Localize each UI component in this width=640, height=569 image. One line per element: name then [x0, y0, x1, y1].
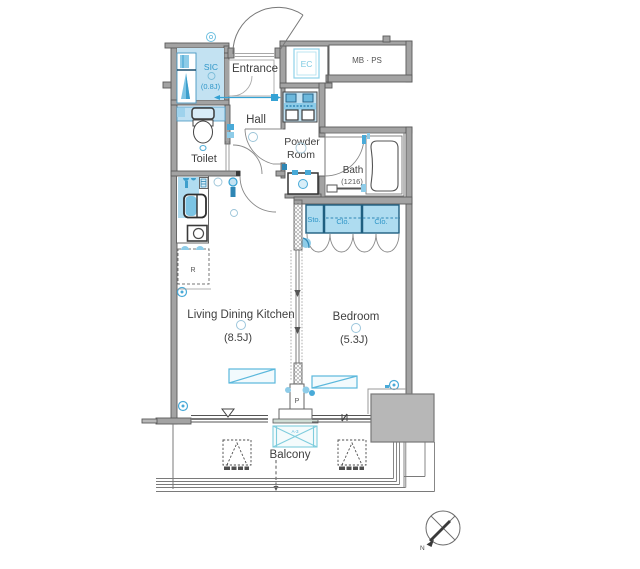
svg-text:Sto.: Sto.: [307, 215, 320, 224]
svg-text:(5.3J): (5.3J): [340, 334, 368, 346]
svg-text:SIC: SIC: [204, 62, 218, 72]
svg-text:Living Dining Kitchen: Living Dining Kitchen: [187, 309, 294, 321]
svg-text:(8.5J): (8.5J): [224, 332, 252, 344]
svg-text:Clo.: Clo.: [374, 217, 387, 226]
svg-text:EC: EC: [301, 59, 313, 69]
svg-text:Room: Room: [287, 149, 315, 161]
svg-text:N: N: [420, 545, 425, 552]
svg-text:R: R: [190, 267, 195, 274]
svg-text:Toilet: Toilet: [191, 153, 217, 165]
svg-text:Balcony: Balcony: [270, 449, 311, 461]
svg-text:Bedroom: Bedroom: [333, 311, 380, 323]
svg-text:(1216): (1216): [341, 177, 363, 186]
svg-text:Clo.: Clo.: [336, 217, 349, 226]
svg-text:Powder: Powder: [284, 136, 320, 148]
svg-text:A-3: A-3: [291, 429, 299, 434]
svg-text:MB · PS: MB · PS: [352, 56, 382, 65]
svg-text:Hall: Hall: [246, 114, 266, 126]
svg-text:P: P: [295, 398, 300, 405]
svg-text:Bath: Bath: [343, 165, 364, 176]
svg-text:(0.8J): (0.8J): [201, 82, 221, 91]
svg-text:Entrance: Entrance: [232, 63, 278, 75]
